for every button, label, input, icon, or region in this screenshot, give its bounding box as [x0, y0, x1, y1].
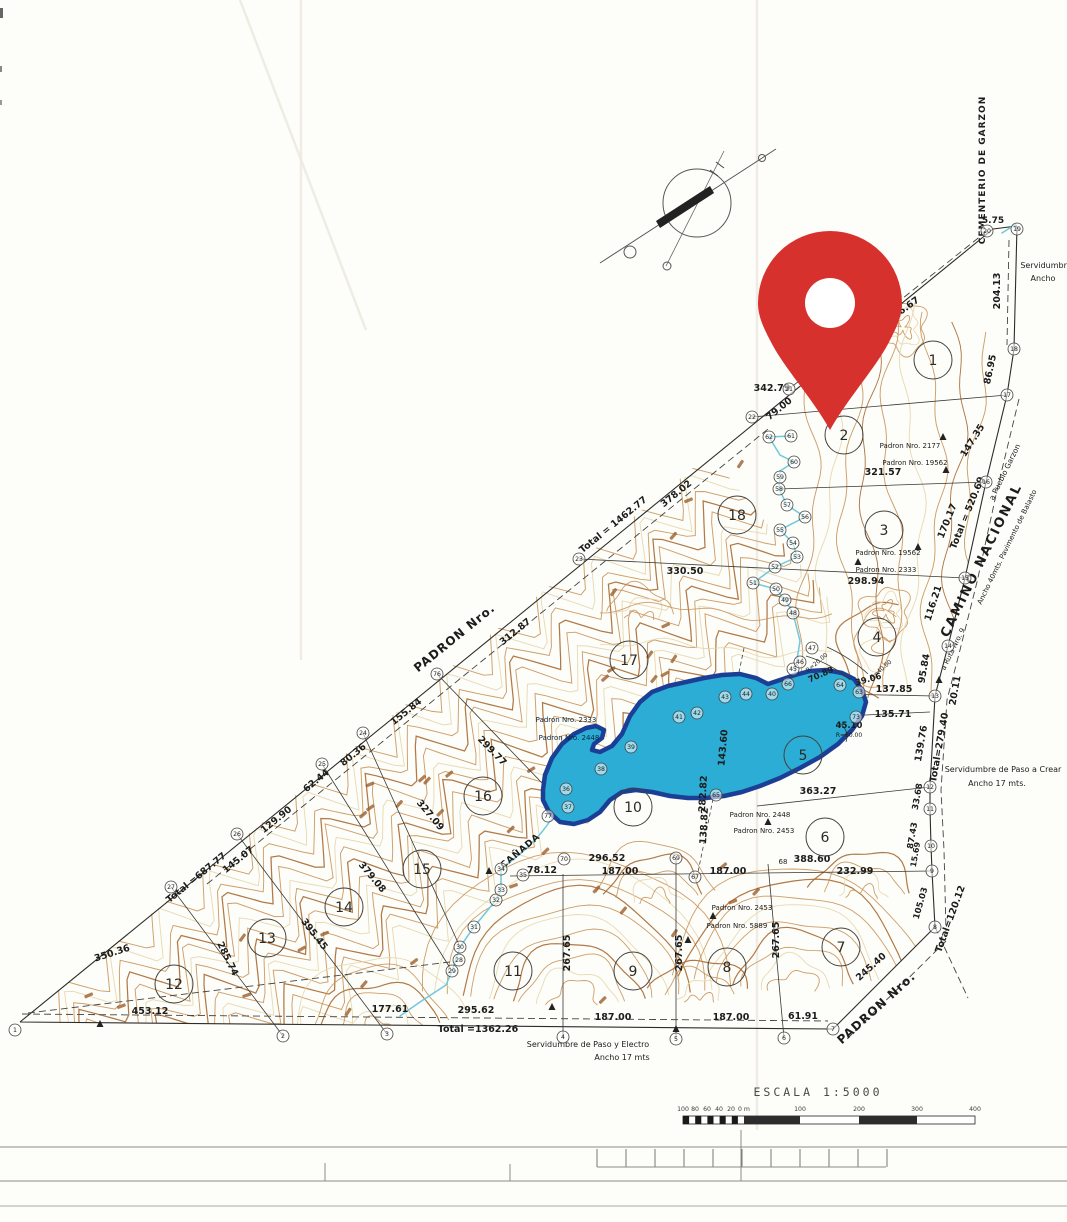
svg-text:51: 51 [749, 580, 757, 587]
svg-text:16: 16 [474, 789, 492, 805]
svg-text:Padron Nro. 2177: Padron Nro. 2177 [880, 442, 941, 450]
svg-text:100: 100 [677, 1106, 689, 1113]
svg-text:Padron Nro. 2333: Padron Nro. 2333 [536, 716, 597, 724]
svg-text:50: 50 [772, 586, 780, 593]
svg-text:4: 4 [873, 630, 882, 646]
svg-text:20: 20 [983, 228, 991, 235]
svg-text:Padron Nro. 2333: Padron Nro. 2333 [856, 566, 917, 574]
svg-text:65: 65 [712, 792, 720, 799]
svg-text:3: 3 [880, 523, 889, 539]
svg-text:312.87: 312.87 [498, 616, 533, 648]
svg-text:PADRON Nro.: PADRON Nro. [834, 969, 918, 1047]
svg-text:18: 18 [1010, 346, 1018, 353]
svg-text:52: 52 [771, 564, 779, 571]
svg-text:53: 53 [793, 554, 801, 561]
svg-text:Padron Nro. 19562: Padron Nro. 19562 [855, 549, 920, 557]
scale-bar: 100806040200 m100200300400 [677, 1106, 981, 1124]
svg-text:Servidumbre de Paso a Crear: Servidumbre de Paso a Crear [945, 765, 1062, 774]
svg-text:2: 2 [281, 1033, 285, 1040]
svg-text:64: 64 [836, 682, 844, 689]
svg-text:20.11: 20.11 [948, 675, 964, 707]
svg-text:66: 66 [784, 681, 792, 688]
svg-text:36: 36 [562, 786, 570, 793]
svg-text:Total =687.77: Total =687.77 [164, 851, 228, 906]
svg-text:204.13: 204.13 [992, 273, 1003, 310]
svg-text:200: 200 [853, 1106, 865, 1113]
svg-text:56: 56 [801, 514, 809, 521]
svg-text:1: 1 [929, 353, 938, 369]
svg-text:79.00: 79.00 [764, 395, 795, 423]
svg-text:100: 100 [794, 1106, 806, 1113]
svg-text:4: 4 [561, 1034, 565, 1041]
svg-text:296.52: 296.52 [589, 853, 626, 864]
svg-text:28: 28 [455, 957, 463, 964]
svg-text:61.91: 61.91 [788, 1011, 818, 1022]
svg-text:Padron Nro. 2453: Padron Nro. 2453 [712, 904, 773, 912]
svg-text:35: 35 [519, 872, 527, 879]
svg-text:86.95: 86.95 [982, 354, 999, 386]
svg-text:5: 5 [799, 748, 808, 764]
svg-text:400: 400 [969, 1106, 981, 1113]
svg-text:232.99: 232.99 [837, 866, 874, 877]
svg-text:267.65: 267.65 [674, 935, 685, 972]
svg-text:34: 34 [497, 866, 505, 873]
svg-text:60: 60 [790, 459, 798, 466]
svg-text:295.62: 295.62 [458, 1005, 495, 1016]
svg-text:22: 22 [748, 414, 756, 421]
svg-text:95.84: 95.84 [917, 652, 933, 684]
svg-text:70: 70 [560, 856, 568, 863]
svg-text:187.00: 187.00 [713, 1012, 750, 1023]
svg-text:48: 48 [789, 610, 797, 617]
svg-text:363.27: 363.27 [800, 786, 837, 797]
svg-text:43: 43 [721, 694, 729, 701]
svg-text:58: 58 [775, 486, 783, 493]
svg-text:24: 24 [359, 730, 367, 737]
svg-text:Total =1362.26: Total =1362.26 [438, 1024, 519, 1035]
svg-text:17: 17 [620, 653, 638, 669]
pin-hole [805, 278, 855, 328]
svg-text:5.75: 5.75 [982, 216, 1004, 226]
svg-text:14: 14 [944, 643, 952, 650]
svg-text:68: 68 [779, 858, 788, 866]
svg-text:378.02: 378.02 [659, 478, 694, 510]
svg-text:298.94: 298.94 [848, 576, 885, 587]
svg-text:60: 60 [703, 1106, 711, 1113]
svg-text:11: 11 [504, 964, 522, 980]
svg-text:18: 18 [728, 508, 746, 524]
svg-text:42: 42 [693, 710, 701, 717]
svg-text:Ancho 17 mts.: Ancho 17 mts. [968, 779, 1026, 788]
svg-text:33: 33 [497, 887, 505, 894]
svg-text:5: 5 [674, 1036, 678, 1043]
svg-text:57: 57 [783, 502, 791, 509]
svg-text:2: 2 [840, 428, 849, 444]
svg-text:6: 6 [782, 1035, 786, 1042]
svg-text:32: 32 [492, 897, 500, 904]
svg-text:17: 17 [1003, 392, 1011, 399]
svg-text:40: 40 [715, 1106, 723, 1113]
svg-text:155.84: 155.84 [389, 696, 425, 728]
svg-text:55: 55 [776, 527, 784, 534]
svg-text:6: 6 [821, 830, 830, 846]
svg-text:Padron Nro. 2453: Padron Nro. 2453 [734, 827, 795, 835]
svg-text:19: 19 [1013, 226, 1021, 233]
svg-text:15: 15 [413, 862, 431, 878]
svg-text:80: 80 [691, 1106, 699, 1113]
svg-text:13: 13 [931, 693, 939, 700]
svg-text:47: 47 [808, 645, 816, 652]
svg-text:78.12: 78.12 [527, 865, 557, 876]
svg-text:PADRON Nro.: PADRON Nro. [411, 601, 498, 675]
svg-text:63: 63 [855, 689, 863, 696]
svg-text:Servidumbre: Servidumbre [1020, 261, 1067, 270]
svg-text:21: 21 [785, 386, 793, 393]
svg-text:139.76: 139.76 [913, 724, 930, 762]
svg-text:27: 27 [167, 884, 175, 891]
svg-text:138.82: 138.82 [698, 807, 711, 844]
scale-title: ESCALA 1:5000 [753, 1085, 882, 1099]
svg-text:187.00: 187.00 [710, 866, 747, 877]
svg-text:25: 25 [318, 761, 326, 768]
svg-text:44: 44 [742, 691, 750, 698]
svg-text:7: 7 [831, 1026, 835, 1033]
svg-text:39: 39 [627, 744, 635, 751]
svg-text:46: 46 [796, 659, 804, 666]
svg-text:30: 30 [456, 944, 464, 951]
svg-text:14: 14 [335, 900, 353, 916]
svg-text:330.50: 330.50 [667, 566, 704, 577]
svg-text:267.65: 267.65 [562, 935, 573, 972]
svg-text:Padron Nro. 2448: Padron Nro. 2448 [730, 811, 791, 819]
svg-text:9: 9 [930, 868, 934, 875]
svg-text:40: 40 [768, 691, 776, 698]
north-arrow-icon [600, 149, 776, 270]
svg-text:1: 1 [13, 1027, 17, 1034]
svg-text:Ancho: Ancho [1031, 274, 1056, 283]
svg-text:Padron Nro. 5889: Padron Nro. 5889 [707, 922, 768, 930]
svg-text:73: 73 [852, 714, 860, 721]
svg-text:Padron Nro. 2448: Padron Nro. 2448 [539, 734, 600, 742]
svg-text:11: 11 [926, 806, 934, 813]
svg-text:59: 59 [776, 474, 784, 481]
svg-text:69: 69 [672, 855, 680, 862]
svg-text:Padron Nro. 19562: Padron Nro. 19562 [882, 459, 947, 467]
svg-text:Total = 1462.77: Total = 1462.77 [577, 494, 649, 555]
svg-text:45: 45 [789, 666, 797, 673]
svg-text:38: 38 [597, 766, 605, 773]
svg-text:12: 12 [165, 977, 183, 993]
svg-text:R=60.00: R=60.00 [836, 732, 863, 739]
scanned-map-page: CEMENTERIO DE GARZON5.75204.13Servidumbr… [0, 0, 1067, 1222]
svg-text:300: 300 [911, 1106, 923, 1113]
svg-text:31: 31 [470, 924, 478, 931]
svg-text:116.21: 116.21 [923, 584, 945, 622]
svg-text:20: 20 [727, 1106, 735, 1113]
svg-text:54: 54 [789, 540, 797, 547]
svg-text:129.90: 129.90 [259, 804, 295, 836]
svg-text:26: 26 [233, 831, 241, 838]
map-canvas: CEMENTERIO DE GARZON5.75204.13Servidumbr… [0, 0, 1067, 1222]
svg-text:8: 8 [933, 924, 937, 931]
svg-text:Ancho 17 mts: Ancho 17 mts [594, 1053, 649, 1062]
svg-text:9: 9 [629, 964, 638, 980]
svg-text:13: 13 [258, 931, 276, 947]
svg-text:177.61: 177.61 [372, 1004, 409, 1015]
svg-text:8: 8 [723, 960, 732, 976]
svg-text:7: 7 [837, 940, 846, 956]
svg-text:12: 12 [926, 784, 934, 791]
svg-text:282.82: 282.82 [697, 775, 710, 812]
svg-text:0 m: 0 m [738, 1106, 750, 1113]
svg-text:187.00: 187.00 [602, 866, 639, 877]
svg-text:61: 61 [787, 433, 795, 440]
svg-text:Total=120.12: Total=120.12 [933, 884, 967, 954]
svg-text:62: 62 [765, 434, 773, 441]
svg-text:49: 49 [781, 597, 789, 604]
svg-text:137.85: 137.85 [876, 684, 913, 695]
svg-text:76: 76 [433, 671, 441, 678]
svg-text:15: 15 [961, 575, 969, 582]
svg-text:16: 16 [982, 479, 990, 486]
svg-text:33.68: 33.68 [911, 782, 926, 810]
svg-text:23: 23 [575, 556, 583, 563]
svg-text:67: 67 [691, 874, 699, 881]
svg-text:321.57: 321.57 [865, 467, 902, 478]
svg-text:10: 10 [624, 800, 642, 816]
svg-text:147.35: 147.35 [958, 422, 987, 459]
svg-text:187.00: 187.00 [595, 1012, 632, 1023]
svg-text:77: 77 [544, 813, 552, 820]
svg-text:135.71: 135.71 [875, 709, 912, 720]
svg-text:41: 41 [675, 714, 683, 721]
svg-text:62.44: 62.44 [301, 767, 332, 795]
svg-text:10: 10 [927, 843, 935, 850]
measurement-labels: CEMENTERIO DE GARZON5.75204.13Servidumbr… [93, 96, 1067, 1062]
svg-text:267.65: 267.65 [771, 922, 782, 959]
svg-text:Servidumbre de Paso y Electro: Servidumbre de Paso y Electro [527, 1040, 649, 1049]
svg-text:37: 37 [564, 804, 572, 811]
svg-text:105.03: 105.03 [912, 886, 931, 920]
svg-text:453.12: 453.12 [132, 1006, 169, 1017]
svg-text:3: 3 [385, 1031, 389, 1038]
svg-text:29: 29 [448, 968, 456, 975]
